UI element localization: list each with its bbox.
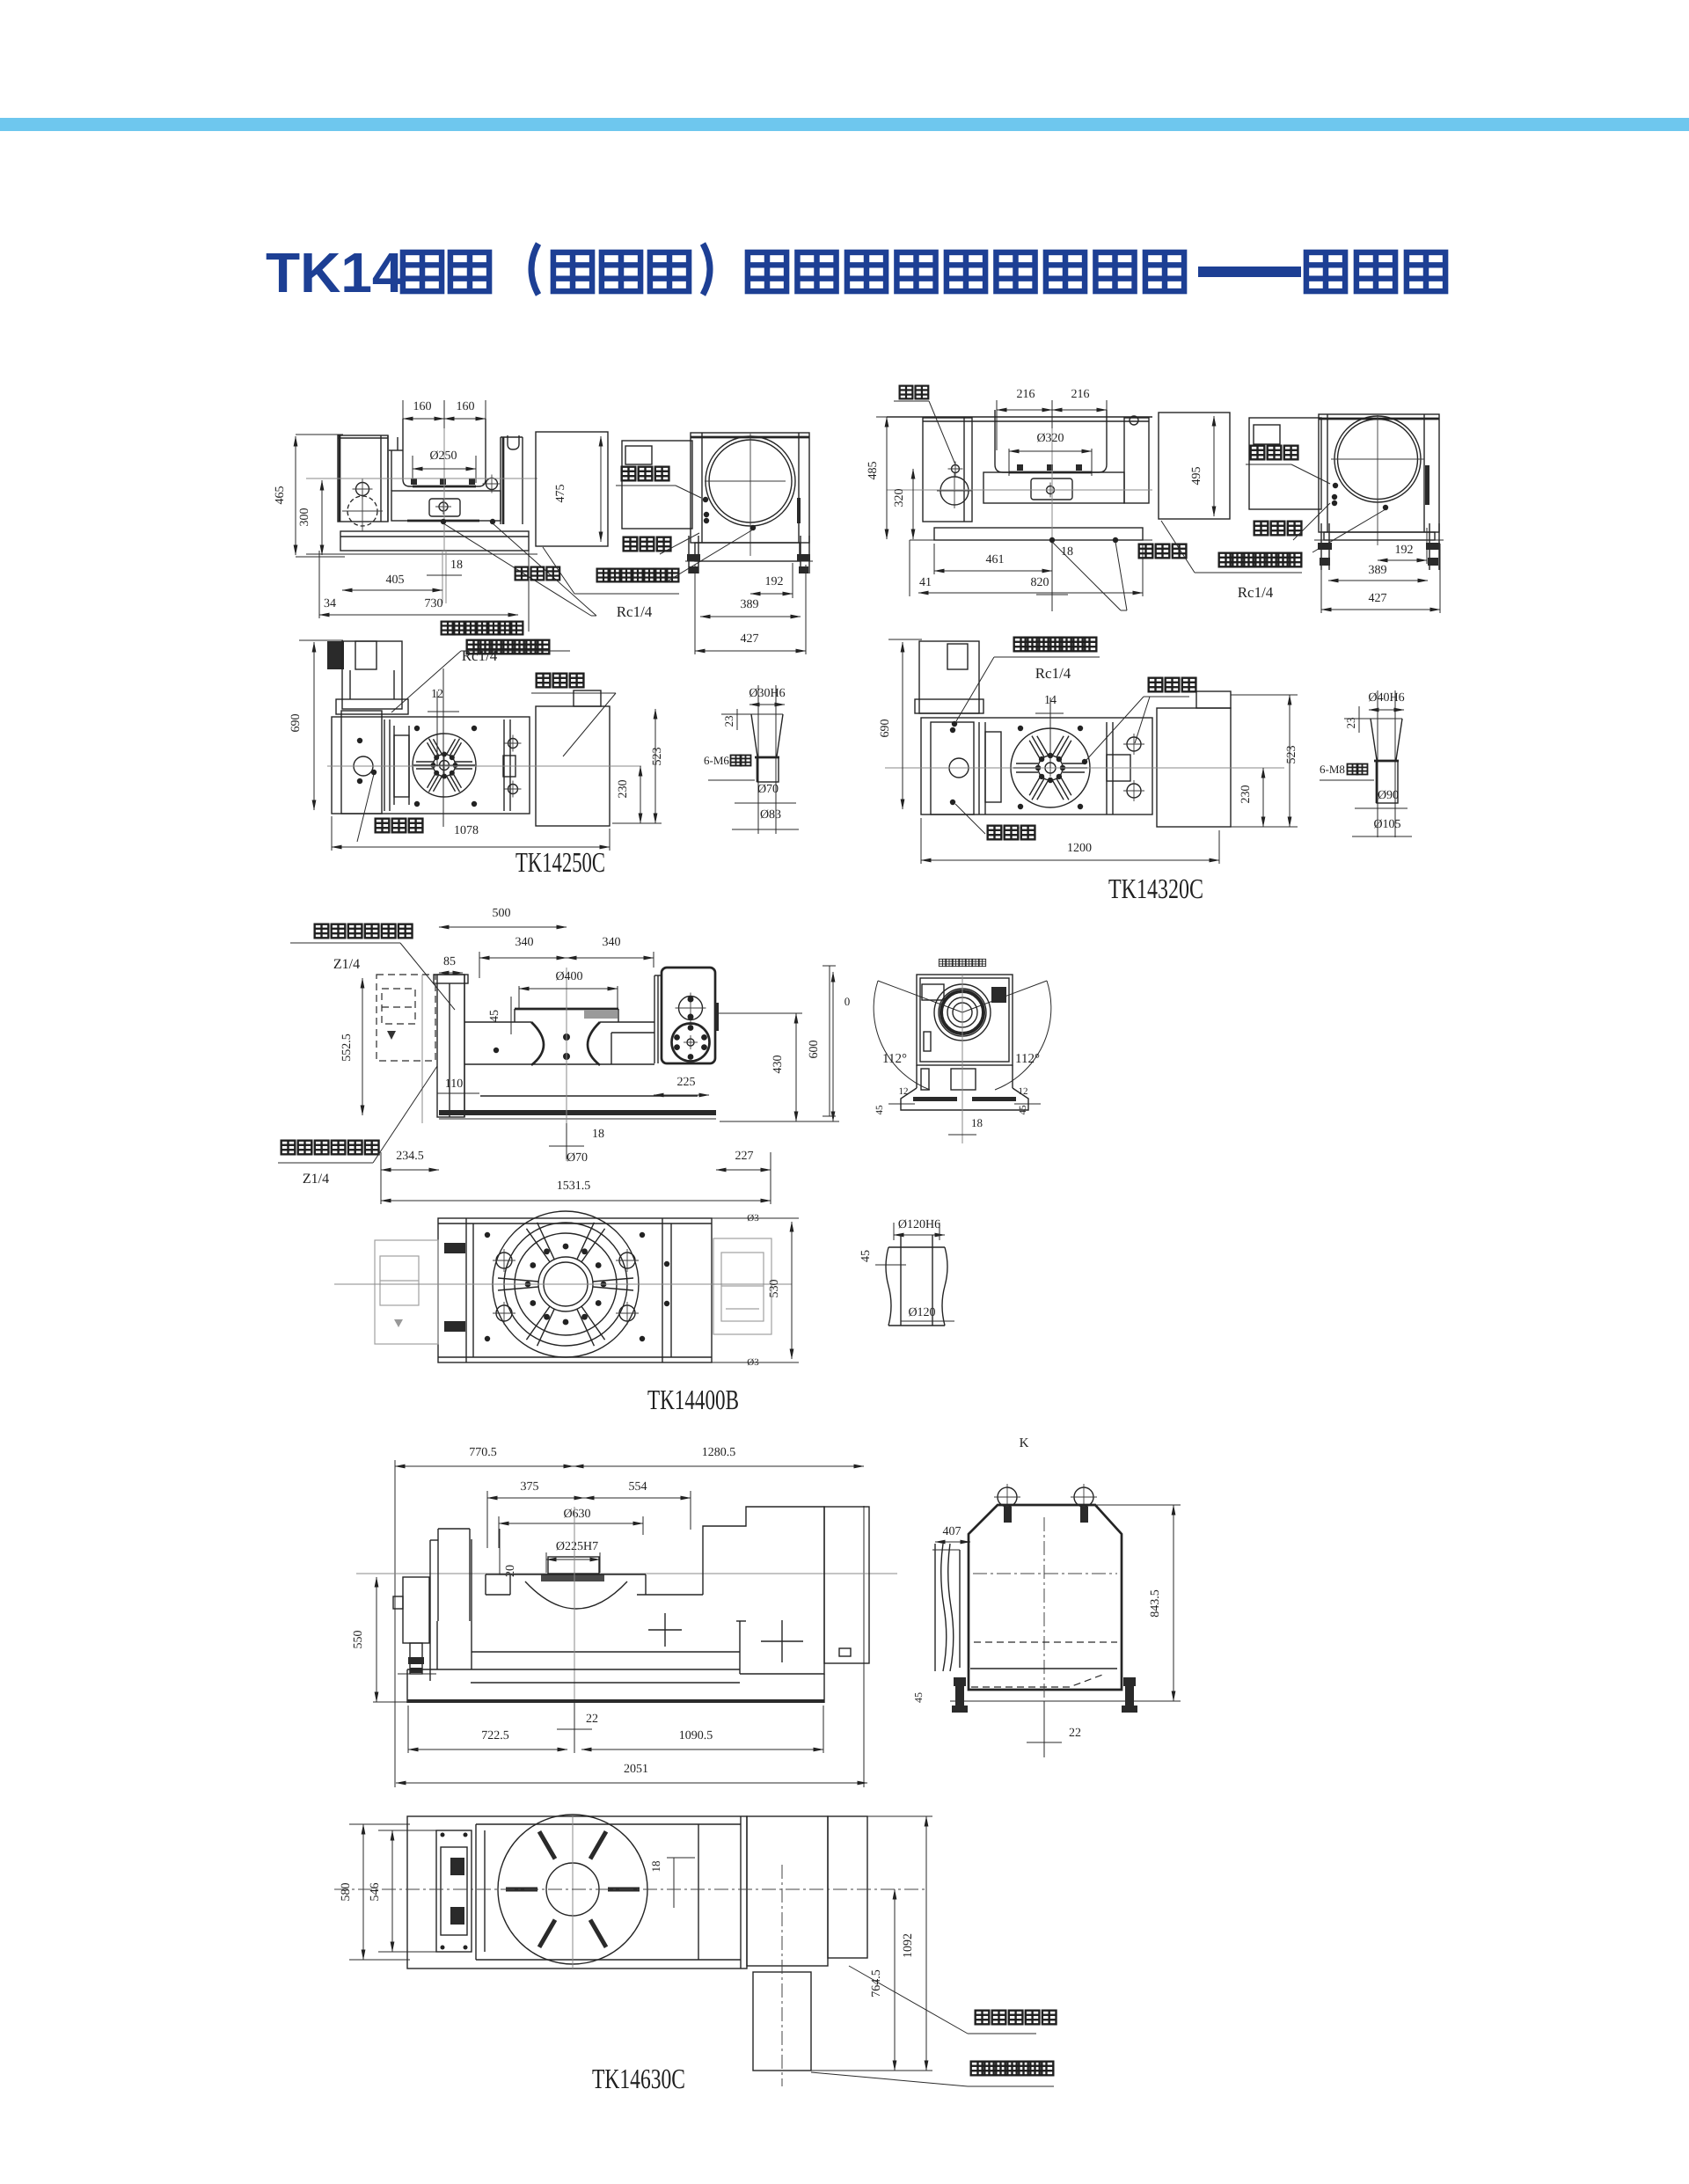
svg-text:1200: 1200 [1067, 842, 1092, 855]
svg-text:Rc1/4: Rc1/4 [617, 603, 653, 620]
svg-text:Ø120: Ø120 [908, 1306, 935, 1319]
svg-text:1078: 1078 [454, 824, 479, 837]
svg-text:TK14320C: TK14320C [1108, 873, 1203, 904]
svg-text:461: 461 [986, 553, 1005, 566]
svg-text:320: 320 [893, 489, 906, 508]
svg-text:6-M6: 6-M6 [704, 754, 729, 767]
svg-text:475: 475 [554, 485, 567, 503]
svg-text:1092: 1092 [902, 1933, 915, 1958]
svg-text:722.5: 722.5 [481, 1729, 509, 1742]
svg-text:Ø630: Ø630 [563, 1508, 590, 1521]
svg-text:45: 45 [1018, 1105, 1028, 1115]
svg-text:18: 18 [592, 1128, 604, 1141]
svg-text:340: 340 [603, 936, 621, 949]
svg-text:12: 12 [899, 1086, 909, 1097]
svg-text:160: 160 [413, 400, 432, 413]
svg-text:500: 500 [493, 907, 511, 920]
svg-text:770.5: 770.5 [469, 1446, 497, 1459]
svg-text:45: 45 [859, 1250, 873, 1262]
svg-text:554: 554 [629, 1480, 647, 1494]
svg-text:41: 41 [919, 576, 932, 589]
svg-text:216: 216 [1017, 388, 1035, 401]
svg-text:18: 18 [649, 1861, 662, 1873]
svg-text:45: 45 [488, 1010, 501, 1022]
svg-text:Z1/4: Z1/4 [303, 1172, 329, 1187]
svg-text:216: 216 [1071, 388, 1090, 401]
svg-text:TK14630C: TK14630C [592, 2063, 685, 2094]
svg-text:389: 389 [1369, 564, 1387, 577]
svg-text:730: 730 [425, 597, 443, 610]
svg-text:112°: 112° [1015, 1052, 1040, 1066]
svg-text:300: 300 [298, 508, 311, 527]
svg-text:227: 227 [735, 1150, 754, 1163]
svg-text:112°: 112° [882, 1052, 907, 1066]
svg-text:Ø90: Ø90 [1378, 789, 1399, 802]
svg-text:230: 230 [1239, 785, 1253, 804]
svg-text:550: 550 [352, 1631, 365, 1649]
svg-text:546: 546 [369, 1883, 382, 1902]
svg-text:22: 22 [1069, 1727, 1081, 1740]
svg-text:234.5: 234.5 [396, 1150, 424, 1163]
svg-text:TK14250C: TK14250C [515, 846, 605, 878]
svg-text:690: 690 [879, 719, 892, 738]
svg-text:485: 485 [866, 462, 880, 480]
svg-text:Ø250: Ø250 [429, 449, 457, 463]
svg-text:Ø320: Ø320 [1036, 432, 1064, 445]
svg-text:Ø83: Ø83 [760, 808, 781, 822]
svg-text:6-M8: 6-M8 [1320, 763, 1345, 776]
svg-text:552.5: 552.5 [340, 1034, 354, 1062]
svg-text:192: 192 [765, 575, 784, 588]
svg-text:375: 375 [521, 1480, 539, 1494]
svg-text:340: 340 [515, 936, 534, 949]
svg-text:Ø40H6: Ø40H6 [1368, 691, 1404, 705]
svg-text:K: K [1020, 1436, 1029, 1450]
svg-text:TK14400B: TK14400B [647, 1384, 739, 1415]
svg-text:427: 427 [741, 632, 759, 646]
svg-text:12: 12 [1019, 1086, 1028, 1097]
svg-text:407: 407 [943, 1525, 961, 1538]
svg-text:45: 45 [874, 1105, 885, 1115]
svg-text:1531.5: 1531.5 [557, 1180, 591, 1193]
svg-text:110: 110 [445, 1077, 463, 1091]
svg-text:Ø30H6: Ø30H6 [749, 687, 785, 700]
svg-text:230: 230 [617, 780, 630, 799]
svg-text:405: 405 [386, 573, 405, 587]
svg-text:18: 18 [450, 559, 463, 572]
svg-text:85: 85 [443, 955, 456, 968]
svg-text:764.5: 764.5 [870, 1969, 883, 1998]
svg-text:495: 495 [1190, 467, 1203, 486]
svg-text:523: 523 [651, 748, 664, 766]
svg-text:427: 427 [1369, 592, 1387, 605]
svg-text:Ø400: Ø400 [555, 970, 582, 983]
svg-text:430: 430 [771, 1055, 785, 1074]
svg-text:690: 690 [289, 714, 303, 733]
svg-text:465: 465 [274, 486, 287, 505]
svg-text:22: 22 [586, 1713, 598, 1726]
svg-text:225: 225 [677, 1076, 696, 1089]
svg-text:530: 530 [768, 1280, 781, 1298]
svg-text:580: 580 [340, 1883, 353, 1902]
svg-text:Ø120H6: Ø120H6 [898, 1218, 940, 1231]
svg-text:23: 23 [1344, 718, 1357, 729]
svg-text:820: 820 [1031, 576, 1049, 589]
svg-text:Ø105: Ø105 [1373, 818, 1400, 831]
svg-text:2051: 2051 [624, 1763, 648, 1776]
svg-text:Rc1/4: Rc1/4 [1035, 665, 1071, 682]
svg-text:45: 45 [912, 1692, 925, 1703]
svg-text:389: 389 [741, 598, 759, 611]
svg-text:160: 160 [457, 400, 475, 413]
svg-text:Ø70: Ø70 [567, 1151, 588, 1165]
svg-text:Ø225H7: Ø225H7 [556, 1540, 598, 1553]
svg-text:600: 600 [808, 1041, 821, 1059]
svg-text:TK14: TK14 [266, 241, 404, 304]
svg-text:192: 192 [1395, 544, 1414, 557]
svg-text:843.5: 843.5 [1149, 1589, 1162, 1618]
svg-text:23: 23 [722, 716, 735, 727]
svg-text:1090.5: 1090.5 [679, 1729, 713, 1742]
svg-text:Z1/4: Z1/4 [333, 957, 360, 972]
svg-text:1280.5: 1280.5 [702, 1446, 736, 1459]
svg-text:34: 34 [324, 597, 336, 610]
svg-text:18: 18 [971, 1116, 983, 1129]
svg-text:0: 0 [844, 995, 851, 1008]
svg-text:Rc1/4: Rc1/4 [1238, 584, 1274, 601]
svg-text:523: 523 [1285, 746, 1298, 764]
svg-text:Ø70: Ø70 [757, 783, 779, 796]
